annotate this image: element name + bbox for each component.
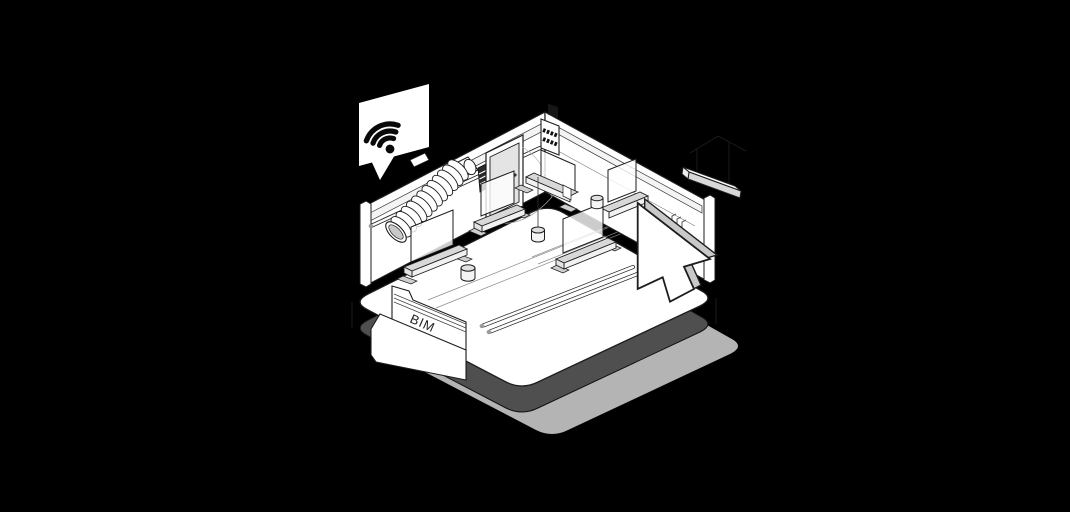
left-wall-post [360, 201, 371, 287]
illustration-canvas: BIM [0, 0, 1070, 512]
paint-bucket-icon [461, 265, 475, 281]
bim-room-illustration: BIM [0, 0, 1070, 512]
paint-bucket-icon [591, 195, 603, 209]
right-wall-post [704, 195, 715, 283]
